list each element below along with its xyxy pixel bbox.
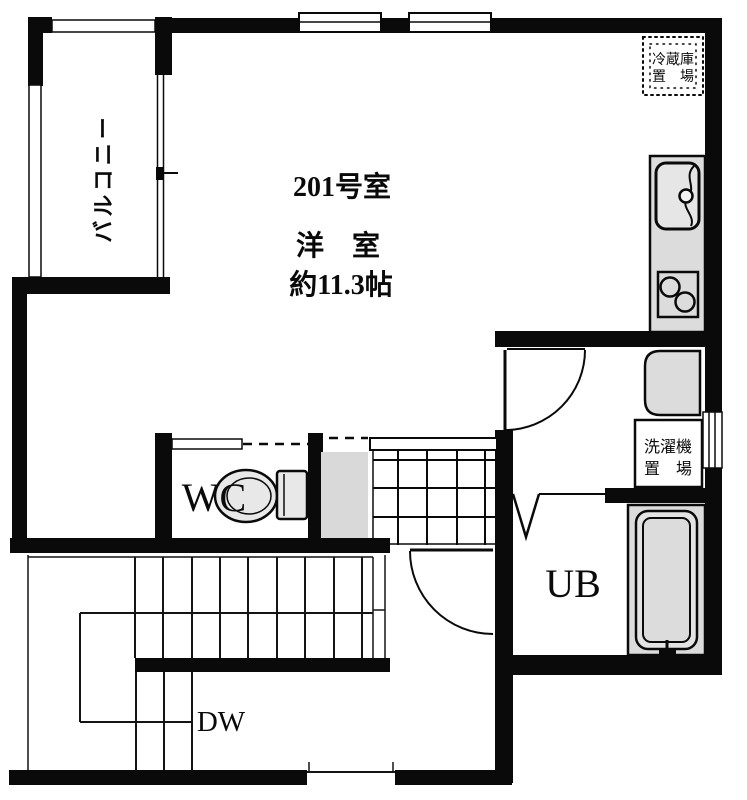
entry-door <box>410 550 493 634</box>
entry-storage <box>313 438 368 538</box>
bathtub-inner <box>643 518 690 642</box>
stove-burner-1 <box>661 278 680 297</box>
refrigerator-label-line2: 置 場 <box>652 69 694 85</box>
balcony-rail-top <box>52 20 155 32</box>
balcony-label: バルコニー <box>92 113 117 243</box>
ub-label: UB <box>545 561 601 606</box>
washroom-top-wall <box>495 331 722 347</box>
genkan <box>370 438 497 545</box>
wc-room: WC <box>172 439 308 522</box>
bottom-wall-left <box>9 770 307 785</box>
balcony-rail-left <box>29 85 41 277</box>
stairs-mid-wall <box>135 658 390 672</box>
washroom-door <box>505 349 585 430</box>
dw-label: DW <box>197 706 246 738</box>
right-window <box>703 412 722 468</box>
storage-cabinet <box>321 452 368 538</box>
refrigerator-label-line1: 冷蔵庫 <box>652 51 694 68</box>
wall-left <box>12 277 27 553</box>
unit-bath: UB <box>513 494 705 655</box>
kitchen-sink-drain <box>680 190 693 203</box>
wc-top-window-bar <box>172 439 242 449</box>
floor-plan-svg: バルコニー 冷蔵庫 置 場 201号室 洋 室 約11.3帖 WC <box>0 0 747 800</box>
stove-burner-2 <box>676 293 695 312</box>
balcony-room-wall-top <box>155 17 172 75</box>
ub-left-wall <box>495 430 513 783</box>
room-name: 洋 室 <box>296 229 380 262</box>
genkan-step-bar <box>370 438 497 450</box>
bottom-wall-right <box>395 770 512 785</box>
washing-machine-label-line1: 洗濯機 <box>644 438 692 456</box>
wc-label: WC <box>182 475 246 520</box>
main-room: 201号室 洋 室 約11.3帖 <box>289 170 392 301</box>
ub-folding-door <box>513 494 539 537</box>
ub-top-wall <box>605 488 722 503</box>
floor-plan: バルコニー 冷蔵庫 置 場 201号室 洋 室 約11.3帖 WC <box>0 0 747 800</box>
wc-left-wall <box>155 433 172 545</box>
balcony-left-post <box>28 17 43 86</box>
wc-right-wall <box>308 433 323 543</box>
stairs-top-wall <box>10 538 390 553</box>
room-area: 約11.3帖 <box>289 268 392 301</box>
washing-machine-label-line2: 置 場 <box>644 460 692 478</box>
kitchen <box>650 156 705 332</box>
refrigerator-space: 冷蔵庫 置 場 <box>643 37 703 95</box>
ub-bottom-wall <box>513 655 722 675</box>
washroom: 洗濯機 置 場 <box>635 351 702 487</box>
balcony-bottom-wall <box>12 277 170 294</box>
washroom-door-swing-arc <box>505 350 585 430</box>
washbasin <box>645 351 700 415</box>
balcony-door-handle <box>156 167 164 180</box>
unit-title: 201号室 <box>293 170 391 203</box>
bathtub-drain <box>659 648 676 655</box>
toilet-tank <box>277 471 307 519</box>
wall-right-upper <box>705 18 722 414</box>
entry-door-swing-arc <box>410 551 493 634</box>
